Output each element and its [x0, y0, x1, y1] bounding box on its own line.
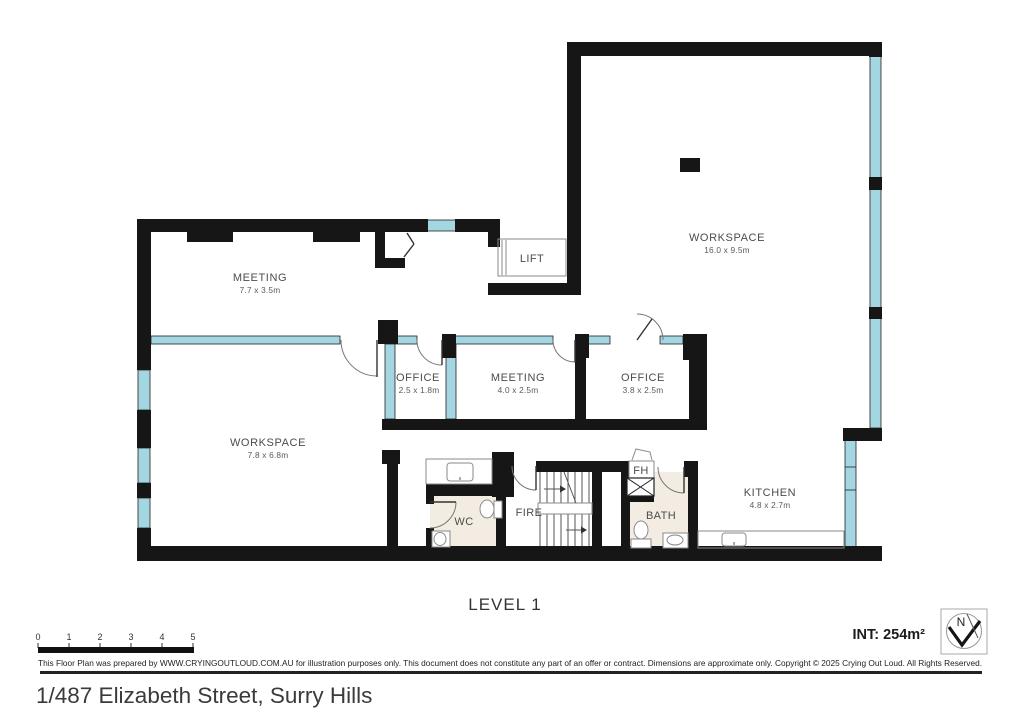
- room-label-meeting-main: MEETING: [233, 272, 287, 284]
- room-dims-workspace-main: 16.0 x 9.5m: [704, 245, 750, 255]
- room-label-bath: BATH: [646, 510, 676, 522]
- room-dims-kitchen: 4.8 x 2.7m: [750, 500, 791, 510]
- door-entry: [404, 233, 414, 257]
- room-label-office-1: OFFICE: [396, 372, 440, 384]
- window-top-entry: [427, 220, 456, 231]
- kitchen-counter-icon: [698, 531, 844, 548]
- level-title: LEVEL 1: [468, 595, 541, 614]
- window-right-3: [870, 318, 881, 428]
- scale-bar: 0 1 2 3 4 5: [35, 632, 195, 653]
- bath-sink-icon: [663, 533, 688, 548]
- scale-tick-0: 0: [35, 632, 40, 642]
- scale-tick-5: 5: [190, 632, 195, 642]
- stairs-icon: [538, 472, 592, 546]
- door-office-1: [417, 340, 442, 365]
- floor-plan-drawing: WORKSPACE 16.0 x 9.5m MEETING 7.7 x 3.5m…: [0, 0, 1024, 724]
- window-right-2: [870, 189, 881, 308]
- property-address: 1/487 Elizabeth Street, Surry Hills: [36, 683, 372, 708]
- window-right-1: [870, 56, 881, 178]
- room-label-lift: LIFT: [520, 253, 544, 265]
- door-meeting-main: [341, 340, 377, 376]
- room-dims-office-1: 2.5 x 1.8m: [399, 385, 440, 395]
- window-left-1: [138, 370, 150, 410]
- window-left-2: [138, 448, 150, 483]
- column: [680, 158, 700, 172]
- glass-wall-row-2: [455, 336, 553, 344]
- room-dims-meeting-2: 4.0 x 2.5m: [498, 385, 539, 395]
- glass-wall-office1-left: [385, 344, 395, 419]
- room-label-fh: FH: [633, 465, 648, 477]
- floor-plan-page: WORKSPACE 16.0 x 9.5m MEETING 7.7 x 3.5m…: [0, 0, 1024, 724]
- north-compass-icon: N: [941, 609, 987, 654]
- scale-tick-4: 4: [159, 632, 164, 642]
- vanity-counter-icon: [426, 459, 492, 484]
- toilet-icon: [480, 500, 502, 518]
- scale-bar-rule: [38, 647, 194, 653]
- window-left-3: [138, 498, 150, 528]
- wall-pier-2: [313, 232, 360, 242]
- room-label-workspace-main: WORKSPACE: [689, 232, 765, 244]
- scale-tick-1: 1: [66, 632, 71, 642]
- room-label-meeting-2: MEETING: [491, 372, 545, 384]
- room-label-fire: FIRE: [516, 507, 543, 519]
- door-fire-stairs: [512, 466, 536, 490]
- window-kitchen: [845, 440, 856, 548]
- door-office-2: [637, 314, 663, 340]
- room-label-wc: WC: [454, 516, 473, 528]
- compass-north-label: N: [957, 615, 966, 629]
- room-label-office-2: OFFICE: [621, 372, 665, 384]
- corner-sink-icon: [432, 531, 450, 547]
- internal-area-label: INT: 254m²: [852, 627, 925, 643]
- glass-wall-meeting-main: [151, 336, 340, 344]
- room-label-workspace-2: WORKSPACE: [230, 437, 306, 449]
- footer-rule: [40, 671, 982, 674]
- glass-wall-row-3: [586, 336, 610, 344]
- room-dims-meeting-main: 7.7 x 3.5m: [240, 285, 281, 295]
- door-meeting-2: [553, 340, 575, 362]
- room-label-kitchen: KITCHEN: [744, 487, 796, 499]
- room-dims-workspace-2: 7.8 x 6.8m: [248, 450, 289, 460]
- scale-tick-3: 3: [128, 632, 133, 642]
- wall-pier-1: [187, 232, 233, 242]
- room-dims-office-2: 3.8 x 2.5m: [623, 385, 664, 395]
- disclaimer-text: This Floor Plan was prepared by WWW.CRYI…: [38, 659, 982, 668]
- walls: [137, 42, 882, 561]
- glass-wall-row-1: [395, 336, 417, 344]
- scale-tick-2: 2: [97, 632, 102, 642]
